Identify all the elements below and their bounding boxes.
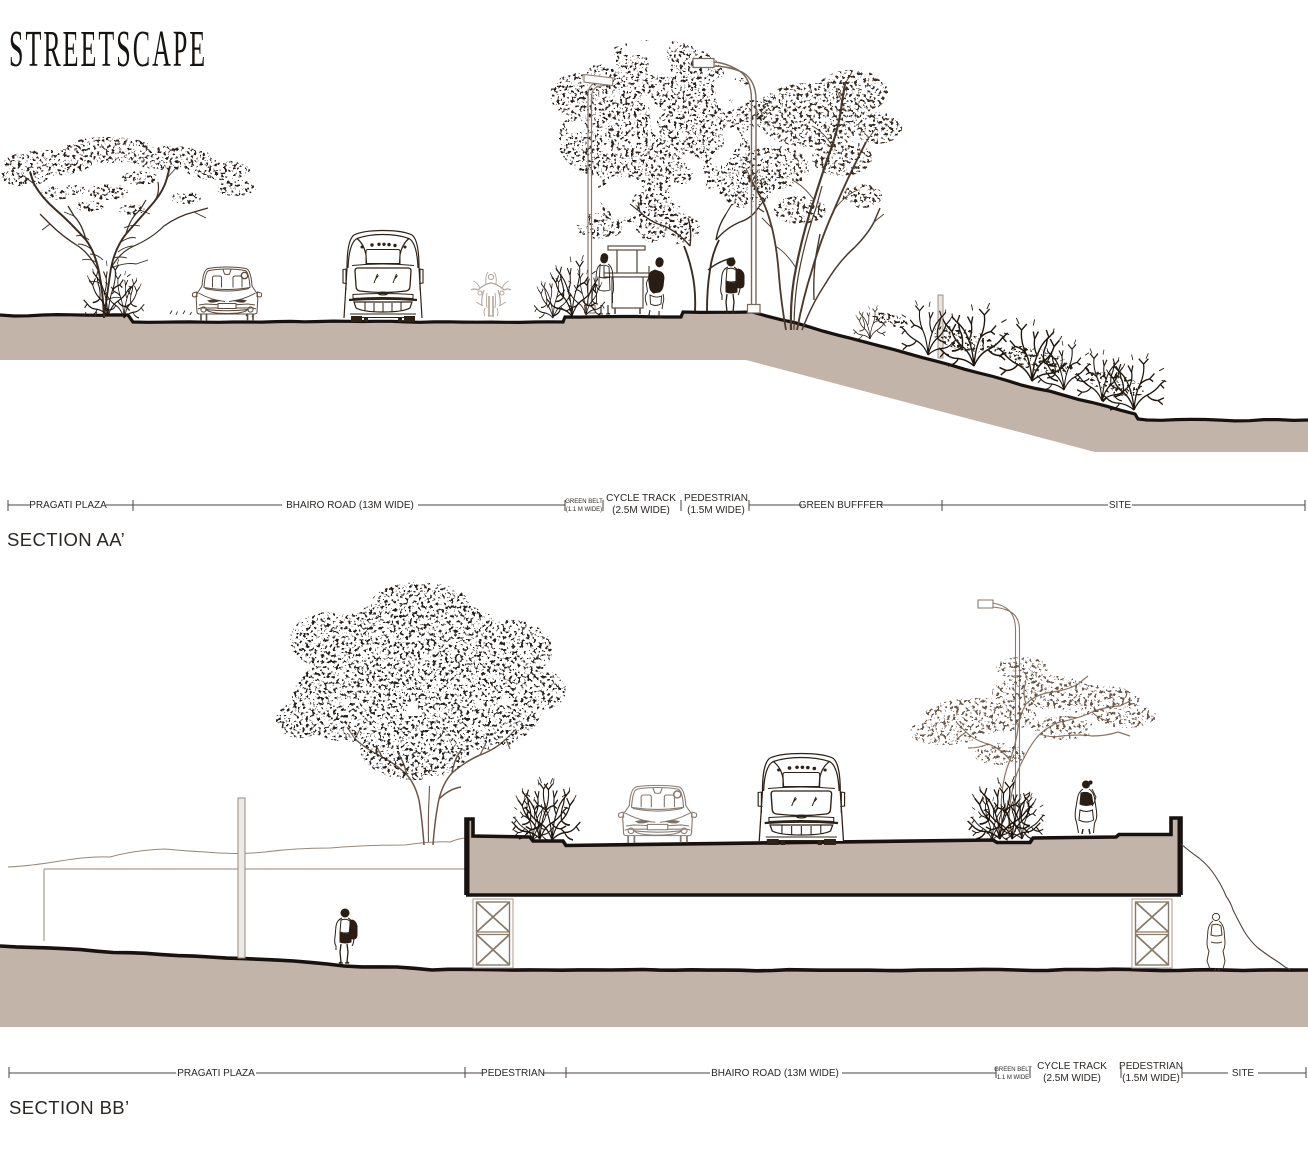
- svg-text:BHAIRO ROAD (13M WIDE): BHAIRO ROAD (13M WIDE): [711, 1068, 839, 1079]
- svg-text:(1.5M WIDE): (1.5M WIDE): [1122, 1073, 1180, 1084]
- svg-text:GREEN BELT: GREEN BELT: [565, 499, 603, 505]
- svg-text:CYCLE TRACK: CYCLE TRACK: [606, 493, 676, 504]
- svg-text:SITE: SITE: [1232, 1068, 1255, 1079]
- svg-text:PRAGATI PLAZA: PRAGATI PLAZA: [29, 500, 107, 511]
- svg-text:PRAGATI PLAZA: PRAGATI PLAZA: [177, 1068, 255, 1079]
- svg-text:PEDESTRIAN: PEDESTRIAN: [1119, 1061, 1183, 1072]
- svg-text:(2.5M WIDE): (2.5M WIDE): [612, 505, 670, 516]
- svg-text:PEDESTRIAN: PEDESTRIAN: [684, 493, 748, 504]
- svg-text:STREETSCAPE: STREETSCAPE: [9, 19, 207, 77]
- svg-text:BHAIRO ROAD (13M WIDE): BHAIRO ROAD (13M WIDE): [286, 500, 414, 511]
- svg-text:PEDESTRIAN: PEDESTRIAN: [481, 1068, 545, 1079]
- svg-text:CYCLE TRACK: CYCLE TRACK: [1037, 1061, 1107, 1072]
- svg-text:(2.5M WIDE): (2.5M WIDE): [1043, 1073, 1101, 1084]
- svg-text:SECTION AA’: SECTION AA’: [7, 529, 125, 550]
- svg-text:(1.5M WIDE): (1.5M WIDE): [687, 505, 745, 516]
- svg-text:1.1 M WIDE: 1.1 M WIDE: [997, 1075, 1029, 1081]
- svg-text:SECTION BB’: SECTION BB’: [9, 1097, 130, 1118]
- svg-text:GREEN BELT: GREEN BELT: [994, 1067, 1032, 1073]
- svg-text:GREEN BUFFFER: GREEN BUFFFER: [799, 500, 883, 511]
- svg-text:SITE: SITE: [1109, 500, 1132, 511]
- svg-text:(1.1 M WIDE): (1.1 M WIDE): [566, 507, 602, 513]
